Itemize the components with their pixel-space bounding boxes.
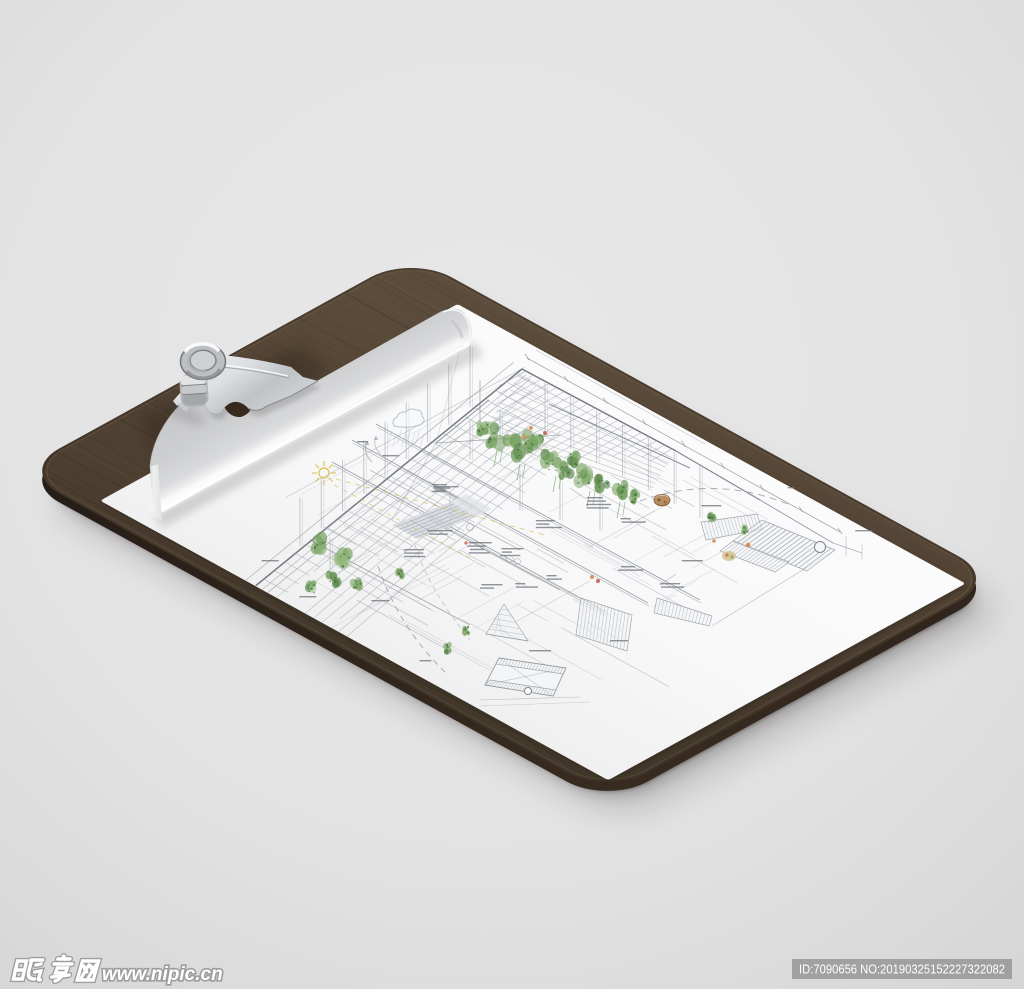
svg-text:www.nipic.cn: www.nipic.cn [102, 964, 223, 985]
svg-text:ID:7090656 NO:2019032515222732: ID:7090656 NO:20190325152227322082 [799, 962, 1005, 977]
